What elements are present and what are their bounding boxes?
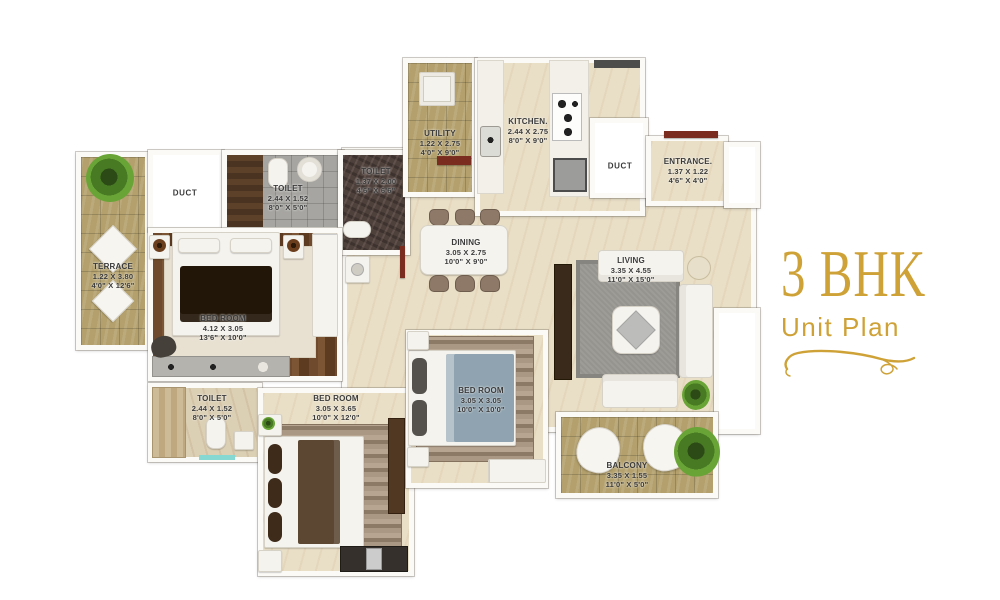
sofa [679,284,713,378]
wardrobe [312,233,338,337]
plant-icon [262,417,275,430]
tv-console [554,264,572,380]
floor-plan-page: TERRACE 1.22 X 3.80 4'0" X 12'6" DUCT TO… [0,0,1000,600]
nightstand [258,550,282,572]
toilet-master-shower-area [227,155,263,227]
washbasin-icon [297,157,322,182]
lamp-icon [153,239,166,252]
living-plant-icon [682,380,710,410]
terrace-plant-icon [86,154,134,202]
plan-title-block: 3 BHK Unit Plan [781,240,991,382]
toilet-lower-label: TOILET 2.44 X 1.52 8'0" X 5'0" [192,394,233,423]
pillow [412,358,427,394]
duct-right-label: DUCT [608,161,633,171]
tall-cabinet [388,418,405,514]
side-table [687,256,711,280]
flourish-icon [781,347,921,377]
door-marker [400,246,405,278]
entrance-door [664,131,718,138]
sofa [602,374,678,408]
washbasin-icon [234,431,254,450]
dining-chair [455,209,475,226]
terrace-label: TERRACE 1.22 X 3.80 4'0" X 12'6" [91,262,134,291]
pillow [268,478,282,508]
bed-blanket [298,440,340,544]
exterior-notch-top-right [724,142,760,208]
pillow [268,512,282,542]
balcony-label: BALCONY 3.35 X 1.55 11'0" X 5'0" [606,461,649,490]
gas-hob-icon [552,93,582,141]
pillow [412,400,427,436]
pillow [230,238,272,253]
page-title: 3 BHK [781,240,991,335]
wardrobe [488,459,546,483]
toilet-icon [343,221,371,238]
nightstand [407,331,429,350]
bedroom-master-label: BED ROOM 4.12 X 3.05 13'6" X 10'0" [199,314,246,343]
washbasin-icon [351,263,364,276]
balcony-plant-icon [674,427,720,477]
utility-shelf [437,156,471,165]
toilet-common-upper-room [338,150,410,255]
pillow [268,444,282,474]
wardrobe-panel [366,548,382,570]
nightstand [407,447,429,467]
dresser [152,356,290,377]
dining-chair [480,209,500,226]
dining-chair [429,275,449,292]
kitchen-label: KITCHEN. 2.44 X 2.75 8'0" X 9'0" [508,117,549,146]
lamp-icon [287,239,300,252]
dining-chair [455,275,475,292]
duct-left-label: DUCT [173,188,198,198]
kitchen-appliance [553,158,587,192]
duct-right-room [590,118,648,198]
utility-label: UTILITY 1.22 X 2.75 4'0" X 9'0" [420,129,461,158]
exterior-notch-bottom-right [714,308,760,434]
bedroom-middle-label: BED ROOM 3.05 X 3.05 10'0" X 10'0" [457,386,504,415]
dining-chair [480,275,500,292]
living-label: LIVING 3.35 X 4.55 11'0" X 15'0" [607,256,654,285]
toilet-master-label: TOILET 2.44 X 1.52 8'0" X 5'0" [268,184,309,213]
dining-label: DINING 3.05 X 2.75 10'0" X 9'0" [444,238,487,267]
shower-tray [199,455,235,460]
toilet-common-upper-label: TOILET 1.37 X 2.00 4'6" X 6'6" [356,167,397,196]
kitchen-sink-icon [480,126,501,157]
dining-chair [429,209,449,226]
kitchen-top-cabinet [594,60,640,68]
toilet-lower-shower-area [152,387,186,458]
bedroom-lower-label: BED ROOM 3.05 X 3.65 10'0" X 12'0" [312,394,359,423]
entrance-label: ENTRANCE. 1.37 X 1.22 4'6" X 4'0" [664,157,712,186]
pillow [178,238,220,253]
washing-machine-icon [419,72,455,106]
